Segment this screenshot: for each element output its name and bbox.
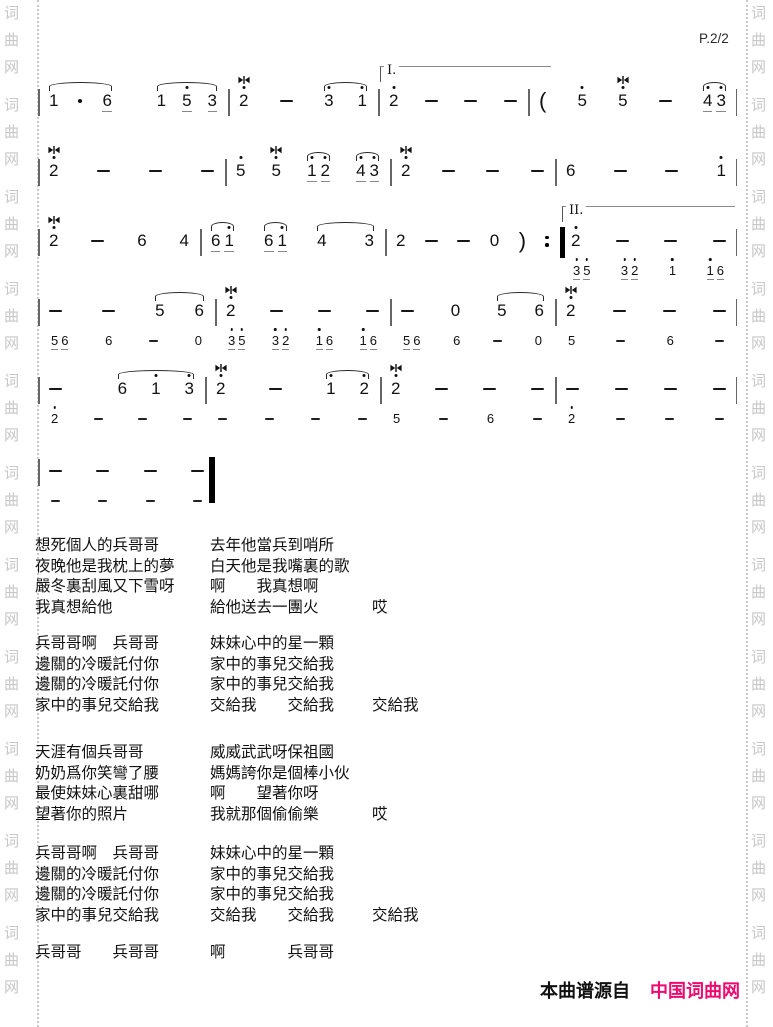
watermark-text: 词 [4, 282, 19, 298]
watermark-text: 曲 [751, 861, 766, 877]
lyric-right: 妹妹心中的星一顆 [210, 636, 334, 652]
octave-dot [623, 258, 626, 261]
watermark-text: 网 [751, 704, 766, 720]
octave-dot [720, 156, 723, 159]
second-voice-row: 2 [555, 410, 737, 428]
sheet-page: { "page": { "number_label": "P.2/2", "fo… [0, 0, 773, 1027]
watermark-text: 曲 [4, 585, 19, 601]
note: 4 [356, 162, 365, 180]
measure: (5543 [528, 86, 737, 116]
dash-note [493, 340, 502, 342]
watermark-text: 网 [751, 888, 766, 904]
note: 6 [413, 333, 420, 349]
measure: 264 [38, 226, 200, 256]
source-credit: 本曲谱源自 中国词曲网 [540, 977, 740, 1003]
measure: 2 [555, 374, 737, 428]
music-system: 16153231I.2(5543 [38, 86, 737, 116]
watermark-text: 曲 [751, 585, 766, 601]
watermark-text: 词 [751, 190, 766, 206]
measure: 256 [555, 296, 737, 350]
octave-dot [324, 156, 327, 159]
watermark-text: 词 [751, 742, 766, 758]
note: 2 [568, 411, 575, 427]
dash-note [144, 470, 157, 472]
watermark-text: 网 [4, 612, 19, 628]
music-system: 5656602353216160565660256 [38, 296, 737, 350]
note: 6 [102, 92, 111, 110]
watermark-text: 网 [4, 152, 19, 168]
note: 6 [211, 232, 220, 250]
note: 4 [317, 232, 326, 250]
octave-dot [720, 86, 723, 89]
watermark-group: 词曲网 [751, 834, 766, 904]
watermark-group: 词曲网 [4, 926, 19, 996]
octave-dot [404, 156, 407, 159]
dash-note [102, 310, 115, 312]
watermark-text: 网 [751, 60, 766, 76]
note: 3 [185, 380, 194, 398]
lyric-tail: 哎 [372, 807, 388, 823]
watermark-group: 词曲网 [751, 466, 766, 536]
measure: 16153 [38, 86, 228, 116]
note: 6 [535, 302, 544, 320]
source-site-link[interactable]: 中国词曲网 [650, 977, 740, 1003]
main-voice-row: 2 [38, 156, 225, 186]
watermark-text: 曲 [4, 953, 19, 969]
note: 1 [717, 162, 726, 180]
repeat-dots [545, 236, 549, 247]
octave-dot [242, 86, 245, 89]
note: 5 [618, 92, 627, 110]
note: 3 [272, 333, 279, 349]
main-voice-row: 16153 [38, 86, 228, 116]
lyric-tail: 哎 [372, 600, 388, 616]
volta-bracket: I. [380, 66, 551, 82]
main-voice-row: 2 [560, 226, 737, 256]
measure [38, 456, 215, 510]
note-group: 31 [324, 92, 367, 110]
lyric-left: 邊關的冷暖託付你 [35, 867, 159, 883]
trill-icon [565, 286, 577, 294]
lyric-right: 交給我 交給我 [210, 698, 334, 714]
watermark-text: 网 [751, 336, 766, 352]
lyric-line: 邊關的冷暖託付你家中的事兒交給我 [35, 677, 735, 698]
main-voice-row [555, 374, 737, 404]
lyric-right: 媽媽誇你是個棒小伙 [210, 766, 350, 782]
note-group: 56 [155, 302, 204, 320]
note: 1 [360, 333, 367, 349]
dash-note [49, 470, 62, 472]
watermark-text: 曲 [751, 125, 766, 141]
note: 2 [566, 302, 575, 320]
main-voice-row: 616143 [200, 226, 385, 256]
watermark-text: 曲 [4, 125, 19, 141]
note-group: 12 [326, 380, 369, 398]
note: 5 [497, 302, 506, 320]
lyric-left: 邊關的冷暖託付你 [35, 677, 159, 693]
lyric-line: 想死個人的兵哥哥去年他當兵到哨所 [35, 538, 735, 559]
dash-note [715, 340, 724, 342]
dash-note [311, 418, 320, 420]
lyric-right: 白天他是我嘴裏的歌 [210, 559, 350, 575]
dash-note [94, 418, 103, 420]
lyric-line: 兵哥哥啊 兵哥哥妹妹心中的星一顆 [35, 846, 735, 867]
dash-note [425, 100, 438, 102]
watermark-text: 曲 [751, 217, 766, 233]
watermark-text: 曲 [4, 493, 19, 509]
lyric-right: 交給我 交給我 [210, 908, 334, 924]
measure: 2 [38, 156, 225, 186]
note-group: 16 [707, 263, 724, 279]
dash-note [358, 418, 367, 420]
dash-note [191, 470, 204, 472]
note-group: 43 [703, 92, 726, 110]
watermark-text: 词 [751, 98, 766, 114]
watermark-text: 词 [4, 926, 19, 942]
octave-dot [185, 86, 188, 89]
note: 1 [707, 263, 714, 279]
volta-bracket: II. [562, 206, 735, 222]
octave-dot [671, 258, 674, 261]
watermark-group: 词曲网 [751, 742, 766, 812]
watermark-group: 词曲网 [4, 6, 19, 76]
dash-note [457, 240, 470, 242]
lyric-left: 家中的事兒交給我 [35, 908, 159, 924]
measure: 565660 [38, 296, 215, 350]
main-voice-row: 551243 [225, 156, 390, 186]
lyric-right: 啊 望著你呀 [210, 786, 319, 802]
note: 2 [216, 380, 225, 398]
dash-note [664, 388, 677, 390]
watermark-text: 曲 [751, 677, 766, 693]
note: 3 [370, 162, 379, 180]
note-group: 61 [264, 232, 287, 250]
lyric-left: 兵哥哥啊 兵哥哥 [35, 636, 159, 652]
octave-dot [359, 156, 362, 159]
watermark-text: 网 [4, 244, 19, 260]
dash-note [218, 418, 227, 420]
watermark-text: 网 [4, 796, 19, 812]
measure: 2 [390, 156, 555, 186]
watermark-text: 网 [4, 336, 19, 352]
watermark-group: 词曲网 [4, 558, 19, 628]
second-voice-row [38, 492, 215, 510]
note: 6 [487, 411, 494, 427]
dash-note [613, 310, 626, 312]
watermark-text: 网 [751, 980, 766, 996]
music-system [38, 456, 737, 510]
dash-note [665, 418, 674, 420]
note-group: 56 [497, 302, 544, 320]
dash-note [665, 170, 678, 172]
lyric-line: 奶奶爲你笑彎了腰媽媽誇你是個棒小伙 [35, 766, 735, 787]
watermark-text: 词 [4, 742, 19, 758]
main-voice-row: 056 [390, 296, 555, 326]
main-voice-row: 2 [378, 86, 528, 116]
lyric-line: 家中的事兒交給我交給我 交給我交給我 [35, 698, 735, 719]
dash-note [715, 418, 724, 420]
octave-dot [392, 86, 395, 89]
second-voice-row: 2 [38, 410, 205, 428]
dash-note [183, 418, 192, 420]
watermark-text: 曲 [4, 217, 19, 233]
lyric-line: 邊關的冷暖託付你家中的事兒交給我 [35, 867, 735, 888]
note: 5 [583, 263, 590, 279]
note: 5 [236, 162, 245, 180]
dash-note [265, 418, 274, 420]
octave-dot [586, 258, 589, 261]
dash-note [531, 170, 544, 172]
note: 2 [391, 380, 400, 398]
note: 2 [49, 232, 58, 250]
dash-note [615, 388, 628, 390]
lyric-line: 家中的事兒交給我交給我 交給我交給我 [35, 908, 735, 929]
octave-dot [229, 296, 232, 299]
note: 3 [365, 232, 374, 250]
note: 2 [226, 302, 235, 320]
lyric-left: 嚴冬裏刮風又下雪呀 [35, 579, 175, 595]
lyric-left: 最使妹妹心裏甜哪 [35, 786, 159, 802]
music-system: 26461614320)II.23532116 [38, 226, 737, 280]
note: 6 [264, 232, 273, 250]
note: 3 [324, 92, 333, 110]
dash-note [663, 310, 676, 312]
octave-dot [575, 258, 578, 261]
lyric-left: 邊關的冷暖託付你 [35, 657, 159, 673]
lyric-right: 威威武武呀保祖國 [210, 745, 334, 761]
watermark-text: 词 [4, 558, 19, 574]
lyric-line: 最使妹妹心裏甜哪啊 望著你呀 [35, 786, 735, 807]
note: 1 [307, 162, 316, 180]
watermark-group: 词曲网 [751, 98, 766, 168]
dash-note [51, 500, 60, 502]
dash-note [439, 418, 448, 420]
lyric-stanza: 想死個人的兵哥哥去年他當兵到哨所夜晚他是我枕上的夢白天他是我嘴裏的歌嚴冬裏刮風又… [35, 538, 735, 620]
note: 5 [568, 333, 575, 349]
octave-dot [621, 86, 624, 89]
dash-note [425, 240, 438, 242]
octave-dot [362, 328, 365, 331]
measure: 616143 [200, 226, 385, 256]
note-group: 43 [356, 162, 379, 180]
note: 4 [703, 92, 712, 110]
left-watermark-column: 词曲网词曲网词曲网词曲网词曲网词曲网词曲网词曲网词曲网词曲网词曲网 [4, 6, 19, 996]
lyric-line: 我真想給他給他送去一團火哎 [35, 600, 735, 621]
page-number: P.2/2 [699, 31, 729, 46]
main-voice-row: 212 [205, 374, 380, 404]
octave-dot [363, 374, 366, 377]
dash-note [533, 418, 542, 420]
lyric-right: 家中的事兒交給我 [210, 887, 334, 903]
octave-dot [241, 328, 244, 331]
dash-note [483, 388, 496, 390]
dash-note [149, 170, 162, 172]
watermark-text: 词 [4, 466, 19, 482]
lyric-stanza: 兵哥哥啊 兵哥哥妹妹心中的星一顆邊關的冷暖託付你家中的事兒交給我邊關的冷暖託付你… [35, 636, 735, 718]
note-group: 16 [49, 92, 112, 110]
watermark-text: 曲 [751, 769, 766, 785]
volta-label: I. [384, 63, 399, 78]
trill-icon [617, 76, 629, 84]
note: 1 [326, 380, 335, 398]
watermark-group: 词曲网 [4, 466, 19, 536]
dash-note [531, 388, 544, 390]
watermark-text: 词 [751, 282, 766, 298]
watermark-group: 词曲网 [751, 558, 766, 628]
note: 3 [208, 92, 217, 110]
lyric-right: 給他送去一團火 [210, 600, 319, 616]
main-voice-row: 56 [38, 296, 215, 326]
watermark-text: 词 [751, 466, 766, 482]
trill-icon [48, 146, 60, 154]
watermark-text: 曲 [4, 769, 19, 785]
dash-note [486, 170, 499, 172]
watermark-group: 词曲网 [751, 282, 766, 352]
trill-icon [225, 286, 237, 294]
lyric-right: 我就那個偷偷樂 [210, 807, 319, 823]
dash-note [193, 500, 202, 502]
main-voice-row: 264 [38, 226, 200, 256]
note: 6 [370, 333, 377, 349]
main-voice-row: 613 [38, 374, 205, 404]
lyric-line: 望著你的照片我就那個偷偷樂哎 [35, 807, 735, 828]
second-voice-row: 3532116 [560, 262, 737, 280]
octave-dot [281, 226, 284, 229]
dash-note [201, 170, 214, 172]
note-group: 12 [307, 162, 330, 180]
note: 6 [105, 333, 112, 349]
note: 3 [621, 263, 628, 279]
watermark-text: 词 [4, 98, 19, 114]
note: 1 [49, 92, 58, 110]
watermark-text: 网 [4, 520, 19, 536]
measure: 551243 [225, 156, 390, 186]
note-group: 35 [573, 263, 590, 279]
note: 1 [316, 333, 323, 349]
note-group: 32 [272, 333, 289, 349]
dash-note [664, 240, 677, 242]
octave-dot [52, 156, 55, 159]
watermark-text: 曲 [4, 33, 19, 49]
lyric-line: 夜晚他是我枕上的夢白天他是我嘴裏的歌 [35, 559, 735, 580]
watermark-text: 网 [4, 428, 19, 444]
note: 1 [151, 380, 160, 398]
note: 5 [403, 333, 410, 349]
watermark-text: 词 [751, 834, 766, 850]
note: 1 [358, 92, 367, 110]
lyric-left: 天涯有個兵哥哥 [35, 745, 144, 761]
lyric-right: 家中的事兒交給我 [210, 657, 334, 673]
lyric-stanza: 兵哥哥啊 兵哥哥妹妹心中的星一顆邊關的冷暖託付你家中的事兒交給我邊關的冷暖託付你… [35, 846, 735, 928]
watermark-text: 网 [4, 980, 19, 996]
note: 0 [535, 333, 542, 349]
lyric-right: 家中的事兒交給我 [210, 677, 334, 693]
lyric-right: 去年他當兵到哨所 [210, 538, 334, 554]
lyric-left: 想死個人的兵哥哥 [35, 538, 159, 554]
octave-dot [188, 374, 191, 377]
dash-note [98, 500, 107, 502]
main-voice-row: 61 [555, 156, 737, 186]
measure: 20) [385, 226, 560, 256]
note: 5 [155, 302, 164, 320]
lyric-line: 邊關的冷暖託付你家中的事兒交給我 [35, 657, 735, 678]
watermark-group: 词曲网 [4, 650, 19, 720]
watermark-text: 词 [4, 834, 19, 850]
watermark-text: 网 [751, 428, 766, 444]
note: 0 [451, 302, 460, 320]
dash-note [49, 388, 62, 390]
octave-dot [52, 226, 55, 229]
watermark-text: 网 [751, 612, 766, 628]
note-group: 35 [228, 333, 245, 349]
note: 6 [326, 333, 333, 349]
note: 3 [716, 92, 725, 110]
lyric-stanza: 天涯有個兵哥哥威威武武呀保祖國奶奶爲你笑彎了腰媽媽誇你是個棒小伙最使妹妹心裏甜哪… [35, 745, 735, 827]
measure: 231 [228, 86, 378, 116]
note: 2 [282, 333, 289, 349]
second-voice-row: 56 [555, 332, 737, 350]
octave-dot [329, 374, 332, 377]
octave-dot [318, 328, 321, 331]
lyric-right: 啊 我真想啊 [210, 579, 319, 595]
lyric-left: 兵哥哥啊 兵哥哥 [35, 846, 159, 862]
right-border-dotted-line [746, 0, 748, 1027]
measure: 0565660 [390, 296, 555, 350]
dash-note [280, 100, 293, 102]
dash-note [566, 388, 579, 390]
octave-dot [634, 258, 637, 261]
lyric-right: 啊 兵哥哥 [210, 945, 334, 961]
music-system: 2551243261 [38, 156, 737, 186]
note: 2 [239, 92, 248, 110]
octave-dot [154, 374, 157, 377]
dash-note [49, 310, 62, 312]
watermark-text: 曲 [751, 953, 766, 969]
note: 1 [278, 232, 287, 250]
watermark-text: 网 [4, 888, 19, 904]
measure: I.2 [378, 86, 528, 116]
main-voice-row: 2 [380, 374, 555, 404]
note: 0 [490, 232, 499, 250]
dash-note [96, 470, 109, 472]
note: 2 [396, 232, 405, 250]
dash-note [91, 240, 104, 242]
watermark-group: 词曲网 [751, 650, 766, 720]
music-system: 61322122562 [38, 374, 737, 428]
main-voice-row: 2 [390, 156, 555, 186]
main-voice-row [38, 456, 215, 486]
lyric-line: 嚴冬裏刮風又下雪呀啊 我真想啊 [35, 579, 735, 600]
watermark-group: 词曲网 [4, 190, 19, 260]
watermark-text: 曲 [4, 309, 19, 325]
note: 6 [118, 380, 127, 398]
dash-note [464, 100, 477, 102]
watermark-text: 曲 [4, 401, 19, 417]
watermark-text: 网 [4, 60, 19, 76]
watermark-text: 曲 [751, 401, 766, 417]
main-voice-row: 20) [385, 226, 560, 256]
octave-dot [275, 156, 278, 159]
note-group: 61 [211, 232, 234, 250]
lyric-left: 奶奶爲你笑彎了腰 [35, 766, 159, 782]
lyric-line: 天涯有個兵哥哥威威武武呀保祖國 [35, 745, 735, 766]
watermark-text: 曲 [4, 677, 19, 693]
note: 3 [228, 333, 235, 349]
measure: 61 [555, 156, 737, 186]
lyric-left: 望著你的照片 [35, 807, 128, 823]
watermark-group: 词曲网 [751, 6, 766, 76]
note-group: 32 [621, 263, 638, 279]
